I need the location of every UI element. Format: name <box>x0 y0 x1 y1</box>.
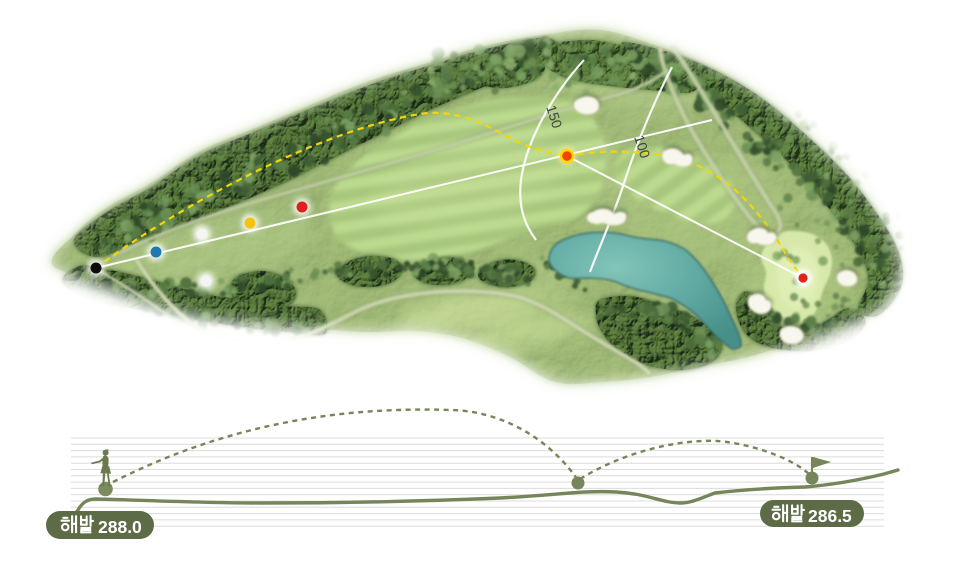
svg-text:286.5: 286.5 <box>808 506 852 526</box>
svg-text:288.0: 288.0 <box>98 517 142 537</box>
